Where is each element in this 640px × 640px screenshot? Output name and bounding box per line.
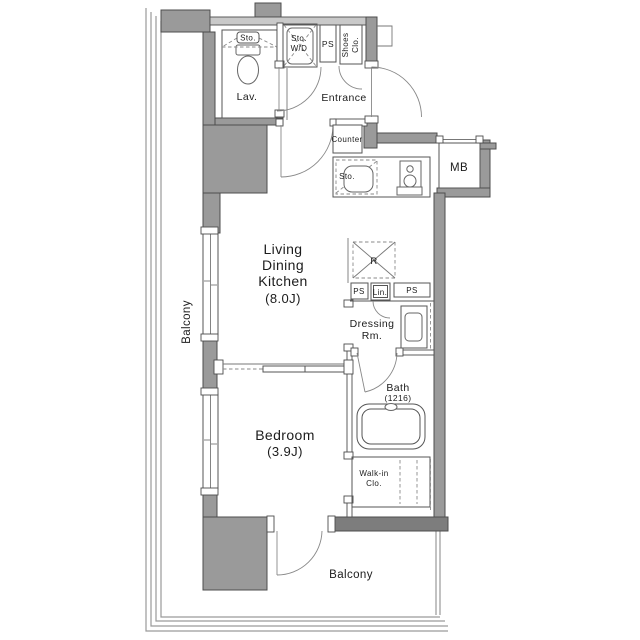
label-ps-top: PS <box>322 39 334 49</box>
sliding-partition <box>214 360 353 374</box>
label-ldk-4: (8.0J) <box>265 291 301 306</box>
label-linen: Lin. <box>373 288 388 297</box>
label-lav: Lav. <box>237 91 258 103</box>
wall-left-block-lower <box>203 517 267 590</box>
toilet <box>236 45 260 84</box>
label-kitchen-sto: Sto. <box>339 172 355 181</box>
label-bedroom: Bedroom <box>255 427 315 443</box>
wall-left-block-upper <box>203 125 267 193</box>
walkin-closet <box>352 457 431 510</box>
label-dressing-1: Dressing <box>350 318 395 330</box>
shoes-closet-door <box>339 66 362 89</box>
wall-top-left <box>161 10 210 32</box>
label-counter: Counter <box>331 135 362 144</box>
label-sto-top: Sto. <box>240 34 256 43</box>
label-ldk-1: Living <box>264 241 303 257</box>
linen-door <box>373 301 390 318</box>
entrance-door <box>365 61 422 123</box>
wall-top-notch <box>255 3 281 17</box>
label-walkin-2: Clo. <box>366 479 382 488</box>
label-balcony-left: Balcony <box>181 300 193 344</box>
balcony-door <box>277 531 322 575</box>
label-sto-wd-1: Sto. <box>291 34 307 43</box>
wall-entrance-right-upper <box>366 17 377 67</box>
wall-right <box>434 193 445 531</box>
label-ps-mid-right: PS <box>406 286 417 295</box>
label-ps-mid-left: PS <box>353 287 364 296</box>
floor-plan-page: Sto. Lav. Sto. W/D PS Shoes Clo. Entranc… <box>0 0 640 640</box>
label-shoes-2: Clo. <box>351 37 360 53</box>
label-fridge: R <box>370 256 377 267</box>
wall-left-mid3 <box>203 492 217 518</box>
wall-lav-bottom <box>215 118 283 125</box>
label-ldk-3: Kitchen <box>258 273 308 289</box>
floor-plan-drawing: Sto. Lav. Sto. W/D PS Shoes Clo. Entranc… <box>0 0 640 640</box>
label-walkin-1: Walk-in <box>359 469 388 478</box>
bathtub <box>357 404 425 450</box>
vanity <box>401 303 431 351</box>
exterior-corridor-outline <box>377 26 392 46</box>
hall-to-ldk-door <box>281 125 333 177</box>
label-ldk-2: Dining <box>262 257 304 273</box>
wall-left-upper <box>203 32 215 125</box>
wall-mb-step <box>479 143 496 149</box>
label-bath-size: (1216) <box>385 393 412 403</box>
stove <box>397 161 422 195</box>
label-bedroom-size: (3.9J) <box>267 444 303 459</box>
label-sto-wd-2: W/D <box>291 44 308 53</box>
wall-kitchen-top <box>375 133 437 143</box>
label-entrance: Entrance <box>321 92 366 104</box>
label-balcony-bottom: Balcony <box>329 569 373 581</box>
label-dressing-2: Rm. <box>362 330 382 342</box>
label-mb: MB <box>450 162 468 174</box>
label-shoes-1: Shoes <box>341 33 350 58</box>
